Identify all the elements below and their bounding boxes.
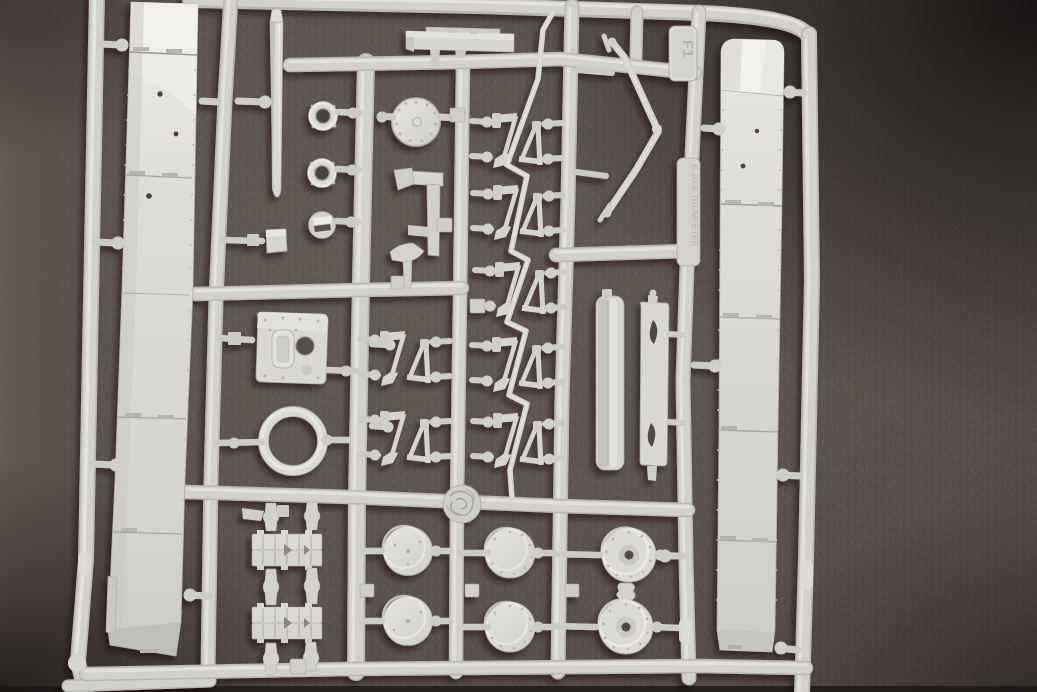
- svg-text:F1: F1: [679, 40, 696, 58]
- svg-text:© 2005 TRUMPETER: © 2005 TRUMPETER: [690, 164, 700, 247]
